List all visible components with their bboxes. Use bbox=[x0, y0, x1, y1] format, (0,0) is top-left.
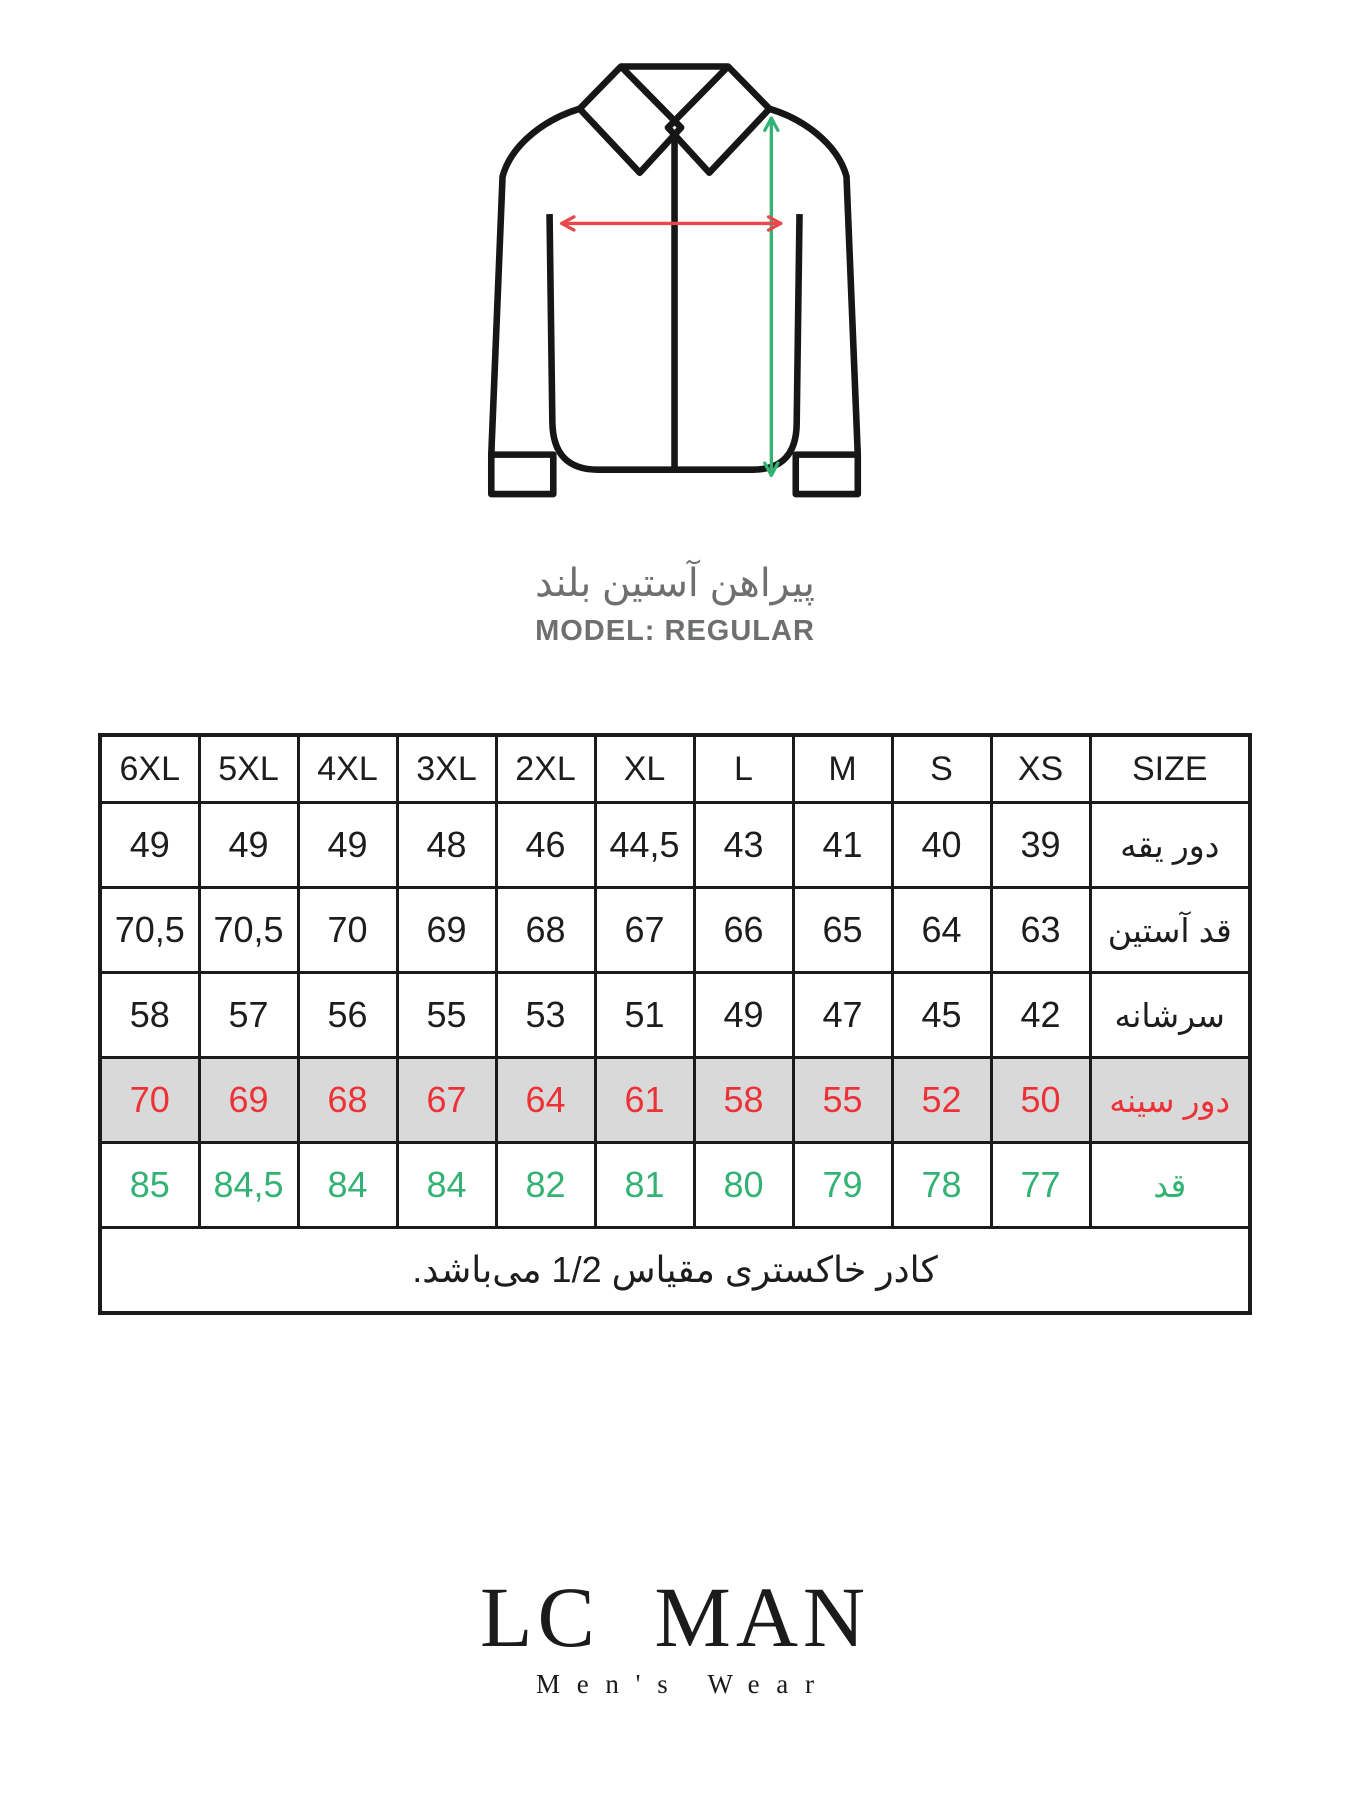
table-row-sleeve: 70,5 70,5 70 69 68 67 66 65 64 63 قد آست… bbox=[100, 888, 1250, 973]
size-cell: 44,5 bbox=[595, 803, 694, 888]
scale-note: کادر خاکستری مقیاس 1/2 می‌باشد. bbox=[100, 1228, 1250, 1314]
size-cell: 67 bbox=[595, 888, 694, 973]
brand-tagline: Men's Wear bbox=[0, 1667, 1350, 1701]
size-cell: 82 bbox=[496, 1143, 595, 1228]
shirt-outline bbox=[491, 66, 858, 494]
size-cell: 68 bbox=[298, 1058, 397, 1143]
size-cell: 77 bbox=[991, 1143, 1090, 1228]
size-cell: 84,5 bbox=[199, 1143, 298, 1228]
size-cell: 70 bbox=[100, 1058, 199, 1143]
size-cell: 81 bbox=[595, 1143, 694, 1228]
size-cell: 79 bbox=[793, 1143, 892, 1228]
size-cell: 64 bbox=[892, 888, 991, 973]
size-table: 6XL 5XL 4XL 3XL 2XL XL L M S XS SIZE 49 … bbox=[98, 733, 1252, 1315]
size-cell: 56 bbox=[298, 973, 397, 1058]
size-cell: 65 bbox=[793, 888, 892, 973]
measure-label: قد آستین bbox=[1090, 888, 1250, 973]
size-cell: 84 bbox=[397, 1143, 496, 1228]
size-cell: 53 bbox=[496, 973, 595, 1058]
size-cell: 40 bbox=[892, 803, 991, 888]
size-cell: 66 bbox=[694, 888, 793, 973]
size-cell: 46 bbox=[496, 803, 595, 888]
size-cell: 52 bbox=[892, 1058, 991, 1143]
size-cell: 69 bbox=[199, 1058, 298, 1143]
size-col-header: M bbox=[793, 735, 892, 803]
size-chart-page: پیراهن آستین بلند MODEL: REGULAR 6XL 5XL… bbox=[0, 0, 1350, 1800]
size-col-header: SIZE bbox=[1090, 735, 1250, 803]
size-cell: 84 bbox=[298, 1143, 397, 1228]
size-cell: 80 bbox=[694, 1143, 793, 1228]
size-cell: 78 bbox=[892, 1143, 991, 1228]
size-cell: 67 bbox=[397, 1058, 496, 1143]
table-header-row: 6XL 5XL 4XL 3XL 2XL XL L M S XS SIZE bbox=[100, 735, 1250, 803]
table-row-collar: 49 49 49 48 46 44,5 43 41 40 39 دور یقه bbox=[100, 803, 1250, 888]
size-cell: 41 bbox=[793, 803, 892, 888]
size-cell: 48 bbox=[397, 803, 496, 888]
size-cell: 42 bbox=[991, 973, 1090, 1058]
size-cell: 55 bbox=[397, 973, 496, 1058]
size-cell: 49 bbox=[298, 803, 397, 888]
size-col-header: L bbox=[694, 735, 793, 803]
size-cell: 64 bbox=[496, 1058, 595, 1143]
shirt-figure: پیراهن آستین بلند MODEL: REGULAR bbox=[0, 0, 1350, 649]
size-cell: 61 bbox=[595, 1058, 694, 1143]
size-cell: 50 bbox=[991, 1058, 1090, 1143]
size-cell: 49 bbox=[100, 803, 199, 888]
size-cell: 70 bbox=[298, 888, 397, 973]
table-row-length: 85 84,5 84 84 82 81 80 79 78 77 قد bbox=[100, 1143, 1250, 1228]
size-cell: 51 bbox=[595, 973, 694, 1058]
size-cell: 68 bbox=[496, 888, 595, 973]
size-cell: 47 bbox=[793, 973, 892, 1058]
size-cell: 69 bbox=[397, 888, 496, 973]
size-col-header: 6XL bbox=[100, 735, 199, 803]
measure-label: دور یقه bbox=[1090, 803, 1250, 888]
size-col-header: XS bbox=[991, 735, 1090, 803]
size-col-header: 2XL bbox=[496, 735, 595, 803]
table-row-chest-highlighted: 70 69 68 67 64 61 58 55 52 50 دور سینه bbox=[100, 1058, 1250, 1143]
size-cell: 45 bbox=[892, 973, 991, 1058]
size-cell: 39 bbox=[991, 803, 1090, 888]
brand-name: LC MAN bbox=[0, 1571, 1350, 1663]
long-sleeve-shirt-icon bbox=[480, 56, 870, 498]
size-cell: 70,5 bbox=[199, 888, 298, 973]
size-col-header: S bbox=[892, 735, 991, 803]
size-col-header: XL bbox=[595, 735, 694, 803]
size-col-header: 3XL bbox=[397, 735, 496, 803]
size-cell: 57 bbox=[199, 973, 298, 1058]
measure-label: سرشانه bbox=[1090, 973, 1250, 1058]
size-cell: 58 bbox=[100, 973, 199, 1058]
size-cell: 70,5 bbox=[100, 888, 199, 973]
model-label: MODEL: REGULAR bbox=[0, 613, 1350, 649]
size-cell: 55 bbox=[793, 1058, 892, 1143]
table-note-row: کادر خاکستری مقیاس 1/2 می‌باشد. bbox=[100, 1228, 1250, 1314]
table-row-shoulder: 58 57 56 55 53 51 49 47 45 42 سرشانه bbox=[100, 973, 1250, 1058]
size-col-header: 4XL bbox=[298, 735, 397, 803]
brand-logo: LC MAN Men's Wear bbox=[0, 1571, 1350, 1701]
measure-label: دور سینه bbox=[1090, 1058, 1250, 1143]
size-cell: 43 bbox=[694, 803, 793, 888]
size-cell: 49 bbox=[694, 973, 793, 1058]
shirt-length-arrow-icon bbox=[765, 118, 778, 475]
size-cell: 58 bbox=[694, 1058, 793, 1143]
size-col-header: 5XL bbox=[199, 735, 298, 803]
garment-title: پیراهن آستین بلند bbox=[0, 561, 1350, 607]
measure-label: قد bbox=[1090, 1143, 1250, 1228]
size-cell: 49 bbox=[199, 803, 298, 888]
size-cell: 85 bbox=[100, 1143, 199, 1228]
size-cell: 63 bbox=[991, 888, 1090, 973]
